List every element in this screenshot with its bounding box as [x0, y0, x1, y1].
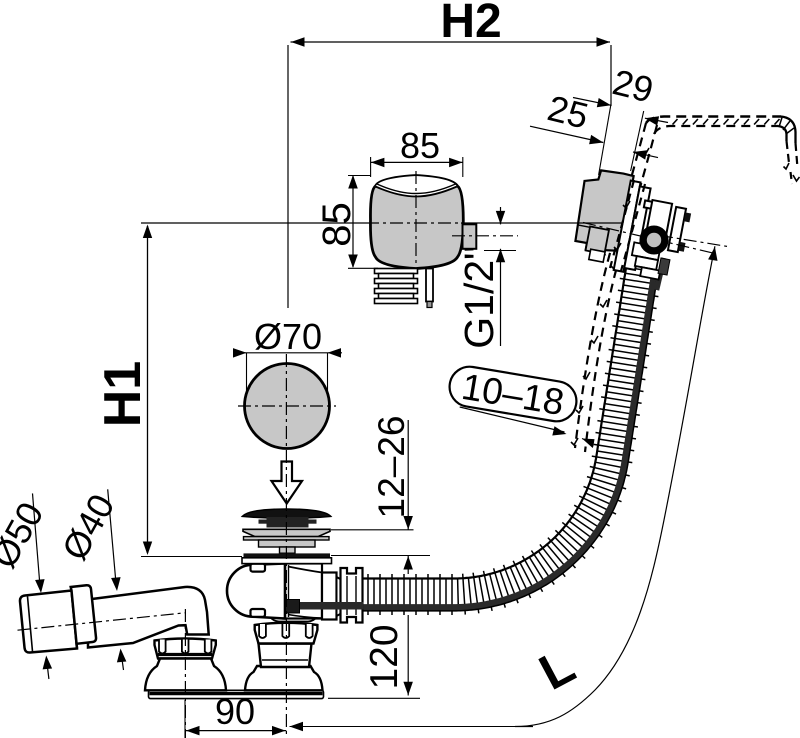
- svg-text:120: 120: [363, 624, 406, 689]
- svg-text:G1/2": G1/2": [456, 245, 502, 348]
- svg-text:12–26: 12–26: [371, 416, 412, 519]
- svg-text:85: 85: [315, 202, 359, 247]
- svg-text:85: 85: [400, 125, 440, 166]
- svg-text:H1: H1: [94, 361, 152, 427]
- svg-text:Ø70: Ø70: [254, 316, 322, 357]
- svg-text:H2: H2: [440, 0, 501, 48]
